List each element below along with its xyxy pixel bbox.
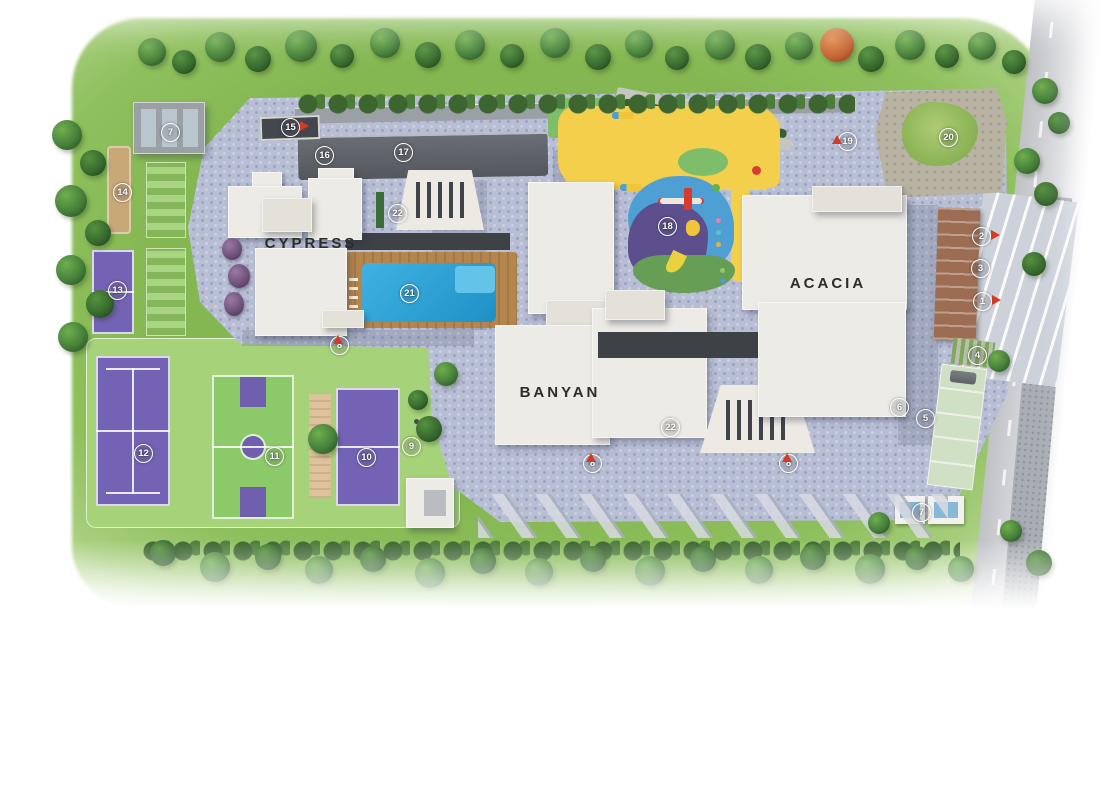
- tower-label-cypress: CYPRESS: [246, 235, 376, 252]
- bench-toy: [620, 184, 642, 191]
- tree: [56, 255, 86, 285]
- tree: [415, 42, 441, 68]
- marker-13-multipurpose-court: 13: [108, 281, 127, 300]
- red-arrow-icon: [992, 295, 1006, 305]
- marker-10-volleyball-court: 10: [357, 448, 376, 467]
- tennis-net-line: [96, 430, 170, 432]
- tree: [455, 30, 485, 60]
- tree: [434, 362, 458, 386]
- master-plan-illustration: CYPRESS BANYAN ACACIA 7 14 13 15 16 17 2…: [0, 0, 1100, 620]
- green-roof-strip: [376, 192, 384, 228]
- tower-banyan-block: [605, 290, 665, 320]
- tree: [1002, 50, 1026, 74]
- kids-pool: [455, 266, 495, 293]
- tree: [585, 44, 611, 70]
- seesaw-toy: [660, 198, 702, 204]
- red-arrow-icon: [300, 121, 314, 131]
- tree: [58, 322, 88, 352]
- tree: [868, 512, 890, 534]
- marker-6-jogging-track: 6: [890, 398, 909, 417]
- practice-net-rows: [146, 248, 186, 336]
- tower-acacia-block: [758, 302, 906, 417]
- pavilion-louvers: [416, 182, 466, 218]
- tree: [500, 44, 524, 68]
- tree: [205, 32, 235, 62]
- tower-cypress-block: [322, 310, 364, 328]
- play-dot: [716, 230, 721, 235]
- red-arrow-icon: [333, 330, 343, 344]
- shrub: [224, 292, 244, 316]
- tree: [1034, 182, 1058, 206]
- play-dot: [720, 268, 725, 273]
- marker-12-tennis-court: 12: [134, 444, 153, 463]
- tennis-court: [96, 356, 170, 506]
- play-dot: [720, 278, 725, 283]
- marker-20-amphitheatre: 20: [939, 128, 958, 147]
- play-dot-red: [752, 166, 761, 175]
- marker-22-terrace-lounge: 22: [661, 418, 680, 437]
- tree: [988, 350, 1010, 372]
- marker-17-skating-area: 17: [394, 143, 413, 162]
- tree: [968, 32, 996, 60]
- red-arrow-icon: [782, 448, 792, 462]
- tree: [52, 120, 82, 150]
- tower-acacia-block: [742, 195, 907, 310]
- tree: [172, 50, 196, 74]
- red-arrow-icon: [832, 130, 842, 144]
- tower-banyan-block: [592, 308, 707, 438]
- legend-panel: LEGEND 1. ENTRY 2. EXIT 3. SECURITY GATE…: [0, 620, 1100, 800]
- shrub: [222, 238, 242, 260]
- tree: [330, 44, 354, 68]
- shrub: [228, 264, 250, 288]
- tree: [80, 150, 106, 176]
- gate-bush: [1022, 252, 1046, 276]
- play-dot: [716, 242, 721, 247]
- tree: [705, 30, 735, 60]
- tower-label-banyan: BANYAN: [495, 384, 625, 401]
- marker-15-ramp-entry: 15: [281, 118, 300, 137]
- marker-9-elders-park: 9: [402, 437, 421, 456]
- tree: [665, 46, 689, 70]
- shed-door: [424, 490, 446, 516]
- tree: [895, 30, 925, 60]
- tower-cypress-block: [262, 198, 312, 232]
- tree: [308, 424, 338, 454]
- club-building: [528, 182, 614, 314]
- marker-18-kids-play-area: 18: [658, 217, 677, 236]
- banyan-courtyard: [598, 332, 758, 358]
- car: [949, 370, 976, 385]
- play-equipment-red: [684, 188, 692, 210]
- tree: [935, 44, 959, 68]
- marker-22-terrace-lounge: 22: [388, 204, 407, 223]
- pool-steps: [349, 272, 358, 308]
- autumn-tree: [820, 28, 854, 62]
- court-line: [212, 446, 294, 448]
- tree: [1000, 520, 1022, 542]
- tree: [745, 44, 771, 70]
- tree: [1032, 78, 1058, 104]
- tree: [285, 30, 317, 62]
- marker-21-infinity-pool: 21: [400, 284, 419, 303]
- tree: [1014, 148, 1040, 174]
- marker-11-basketball-court: 11: [265, 447, 284, 466]
- marker-4-bus-bay: 4: [968, 346, 987, 365]
- tower-acacia-block: [812, 186, 902, 212]
- tree: [55, 185, 87, 217]
- tree: [1048, 112, 1070, 134]
- marker-2-exit: 2: [972, 227, 991, 246]
- play-dot-green: [712, 184, 720, 192]
- tree: [245, 46, 271, 72]
- marker-7-utility: 7: [161, 123, 180, 142]
- volleyball-court: [336, 388, 400, 506]
- hedge-row-top: [295, 92, 855, 116]
- bottom-fade: [0, 540, 1100, 620]
- marker-3-security-gate: 3: [971, 259, 990, 278]
- marker-5-driveway: 5: [916, 409, 935, 428]
- play-dot: [716, 218, 721, 223]
- marker-16-bicycle-track: 16: [315, 146, 334, 165]
- basketball-key: [240, 377, 266, 407]
- tree: [540, 28, 570, 58]
- tree: [858, 46, 884, 72]
- tower-cypress-block: [308, 178, 362, 240]
- marker-7-utility: 7: [912, 503, 931, 522]
- basketball-court: [212, 375, 294, 519]
- red-arrow-icon: [991, 230, 1005, 240]
- red-arrow-icon: [586, 448, 596, 462]
- tree: [416, 416, 442, 442]
- tower-label-acacia: ACACIA: [763, 275, 893, 292]
- basketball-key: [240, 487, 266, 517]
- tree: [370, 28, 400, 58]
- practice-net-rows: [146, 162, 186, 238]
- tree: [408, 390, 428, 410]
- play-equipment-yellow: [686, 220, 700, 236]
- marker-1-entry: 1: [973, 292, 992, 311]
- tree: [785, 32, 813, 60]
- tree: [625, 30, 653, 58]
- tree: [138, 38, 166, 66]
- marker-14-cricket-pitch: 14: [113, 183, 132, 202]
- tree: [85, 220, 111, 246]
- site-plan-page: CYPRESS BANYAN ACACIA 7 14 13 15 16 17 2…: [0, 0, 1100, 800]
- play-green-patch: [678, 148, 728, 176]
